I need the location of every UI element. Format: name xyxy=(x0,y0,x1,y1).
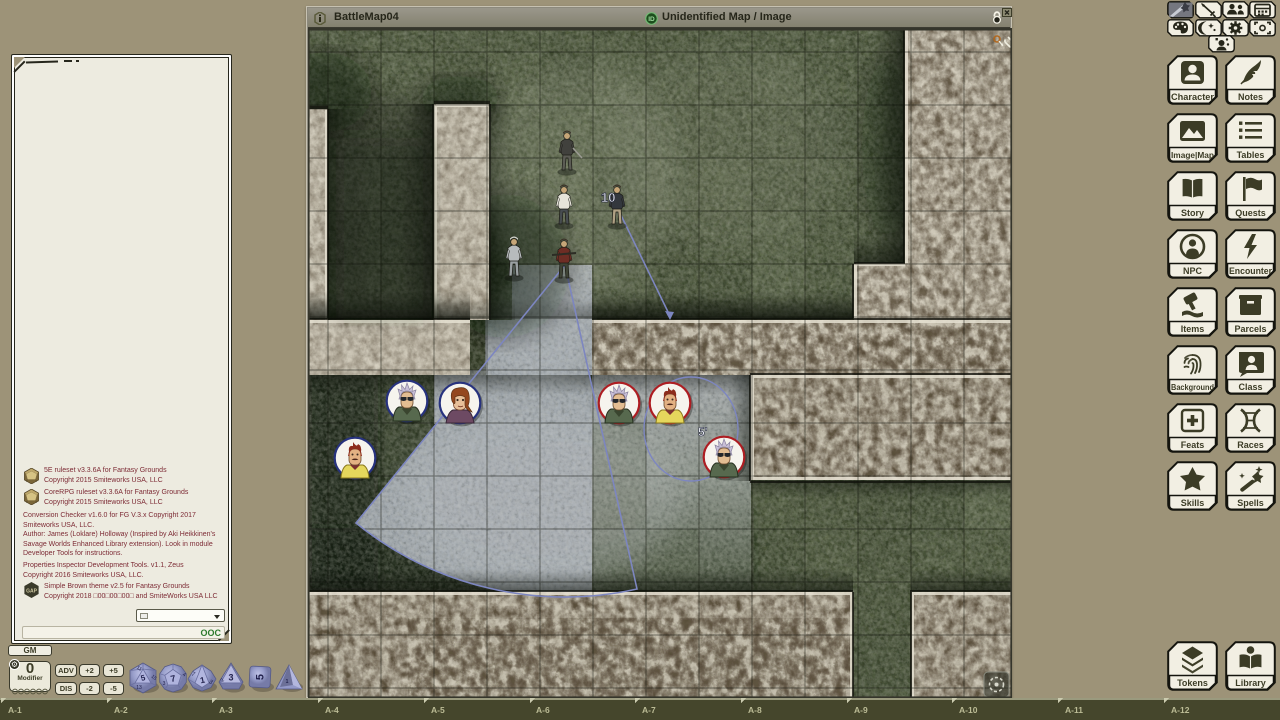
svg-text:Tokens: Tokens xyxy=(1177,678,1208,688)
svg-text:3: 3 xyxy=(163,681,166,687)
svg-text:Notes: Notes xyxy=(1238,92,1263,102)
svg-text:Quests: Quests xyxy=(1235,208,1266,218)
svg-text:3: 3 xyxy=(228,673,233,683)
svg-text:13: 13 xyxy=(136,685,142,691)
svg-text:Tables: Tables xyxy=(1237,150,1265,160)
svg-text:ID: ID xyxy=(648,16,655,23)
svg-text:5: 5 xyxy=(255,674,267,680)
svg-text:Story: Story xyxy=(1181,208,1204,218)
svg-text:Character: Character xyxy=(1171,92,1214,102)
svg-text:NPC: NPC xyxy=(1183,266,1203,276)
svg-text:Encounter: Encounter xyxy=(1229,266,1272,276)
svg-text:Library: Library xyxy=(1235,678,1266,688)
svg-text:GAP: GAP xyxy=(26,589,38,595)
svg-text:1: 1 xyxy=(286,679,289,685)
svg-text:10: 10 xyxy=(601,190,615,205)
svg-text:Feats: Feats xyxy=(1181,440,1205,450)
svg-text:Skills: Skills xyxy=(1181,498,1205,508)
svg-text:Races: Races xyxy=(1237,440,1264,450)
svg-text:Class: Class xyxy=(1238,382,1262,392)
svg-text:Background: Background xyxy=(1171,382,1214,392)
svg-text:5': 5' xyxy=(698,425,708,439)
svg-text:Spells: Spells xyxy=(1237,498,1264,508)
svg-text:Image|Map: Image|Map xyxy=(1171,150,1214,160)
svg-text:Items: Items xyxy=(1181,324,1205,334)
svg-text:Parcels: Parcels xyxy=(1234,324,1266,334)
